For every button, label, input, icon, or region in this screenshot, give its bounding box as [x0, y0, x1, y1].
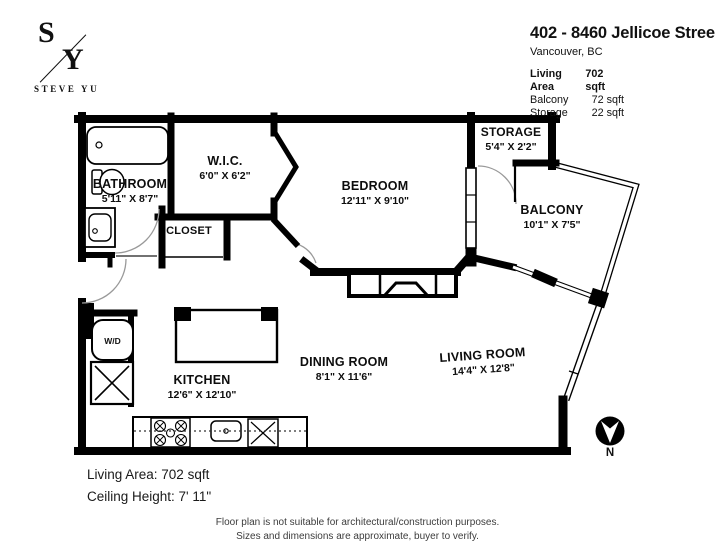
room-name: CLOSET [166, 225, 212, 238]
north-arrow-icon [596, 417, 625, 446]
logo-initial-bottom: Y [62, 45, 84, 75]
listing-title: 402 - 8460 Jellicoe Street [530, 24, 706, 43]
logo-initial-top: S [38, 18, 55, 48]
area-label: Balcony [530, 94, 568, 107]
area-value: 702 sqft [585, 68, 624, 94]
room-label-bathroom: BATHROOM 5'11" X 8'7" [93, 178, 167, 205]
room-name: W.I.C. [199, 155, 250, 168]
room-label-bedroom: BEDROOM 12'11" X 9'10" [341, 180, 409, 207]
room-name: BATHROOM [93, 178, 167, 191]
room-dims: 12'11" X 9'10" [341, 195, 409, 207]
area-table: Living Area 702 sqft Balcony 72 sqft Sto… [530, 68, 624, 120]
balcony-sliding-door [513, 267, 609, 308]
fireplace [349, 273, 456, 296]
room-name: STORAGE [481, 126, 542, 139]
disclaimer-line-1: Floor plan is not suitable for architect… [0, 516, 715, 530]
walls-group [78, 116, 567, 451]
area-row-storage: Storage 22 sqft [530, 107, 624, 120]
living-room-window [566, 301, 601, 400]
disclaimer-line-2: Sizes and dimensions are approximate, bu… [0, 530, 715, 544]
room-name: DINING ROOM [300, 356, 388, 369]
room-name: BEDROOM [341, 180, 409, 193]
room-dims: 10'1" X 7'5" [520, 219, 583, 231]
plan-notes: Living Area: 702 sqft Ceiling Height: 7'… [87, 467, 211, 511]
north-label: N [606, 447, 614, 459]
room-label-kitchen: KITCHEN 12'6" X 12'10" [168, 374, 237, 401]
area-label: Storage [530, 107, 568, 120]
listing-city: Vancouver, BC [530, 46, 706, 58]
area-value: 22 sqft [592, 107, 624, 120]
kitchen-island [174, 307, 278, 362]
area-row-living: Living Area 702 sqft [530, 68, 624, 94]
agent-logo: S Y STEVE YU [33, 18, 113, 102]
washer-dryer-label: W/D [104, 336, 121, 346]
note-living-area: Living Area: 702 sqft [87, 467, 211, 482]
room-label-balcony: BALCONY 10'1" X 7'5" [520, 204, 583, 231]
room-name: BALCONY [520, 204, 583, 217]
area-label: Living Area [530, 68, 585, 94]
agent-name: STEVE YU [34, 84, 99, 94]
utility-closet-box [91, 362, 133, 404]
room-dims: 8'1" X 11'6" [300, 371, 388, 383]
floor-plan-page: { "logo": { "top_initial": "S", "bottom_… [0, 0, 715, 560]
area-row-balcony: Balcony 72 sqft [530, 94, 624, 107]
vanity-sink [85, 208, 115, 247]
bedroom-window [466, 168, 476, 248]
room-name: KITCHEN [168, 374, 237, 387]
room-label-wic: W.I.C. 6'0" X 6'2" [199, 155, 250, 182]
disclaimer: Floor plan is not suitable for architect… [0, 516, 715, 543]
listing-header: 402 - 8460 Jellicoe Street Vancouver, BC… [530, 24, 706, 120]
room-dims: 5'11" X 8'7" [93, 193, 167, 205]
room-label-closet: CLOSET [166, 225, 212, 238]
room-dims: 5'4" X 2'2" [481, 141, 542, 153]
area-value: 72 sqft [592, 94, 624, 107]
bathtub [87, 127, 168, 164]
note-ceiling-height: Ceiling Height: 7' 11" [87, 489, 211, 504]
room-label-dining: DINING ROOM 8'1" X 11'6" [300, 356, 388, 383]
room-dims: 12'6" X 12'10" [168, 389, 237, 401]
room-label-storage: STORAGE 5'4" X 2'2" [481, 126, 542, 153]
room-dims: 6'0" X 6'2" [199, 170, 250, 182]
dishwasher [248, 419, 278, 447]
balcony-railing [556, 165, 636, 297]
